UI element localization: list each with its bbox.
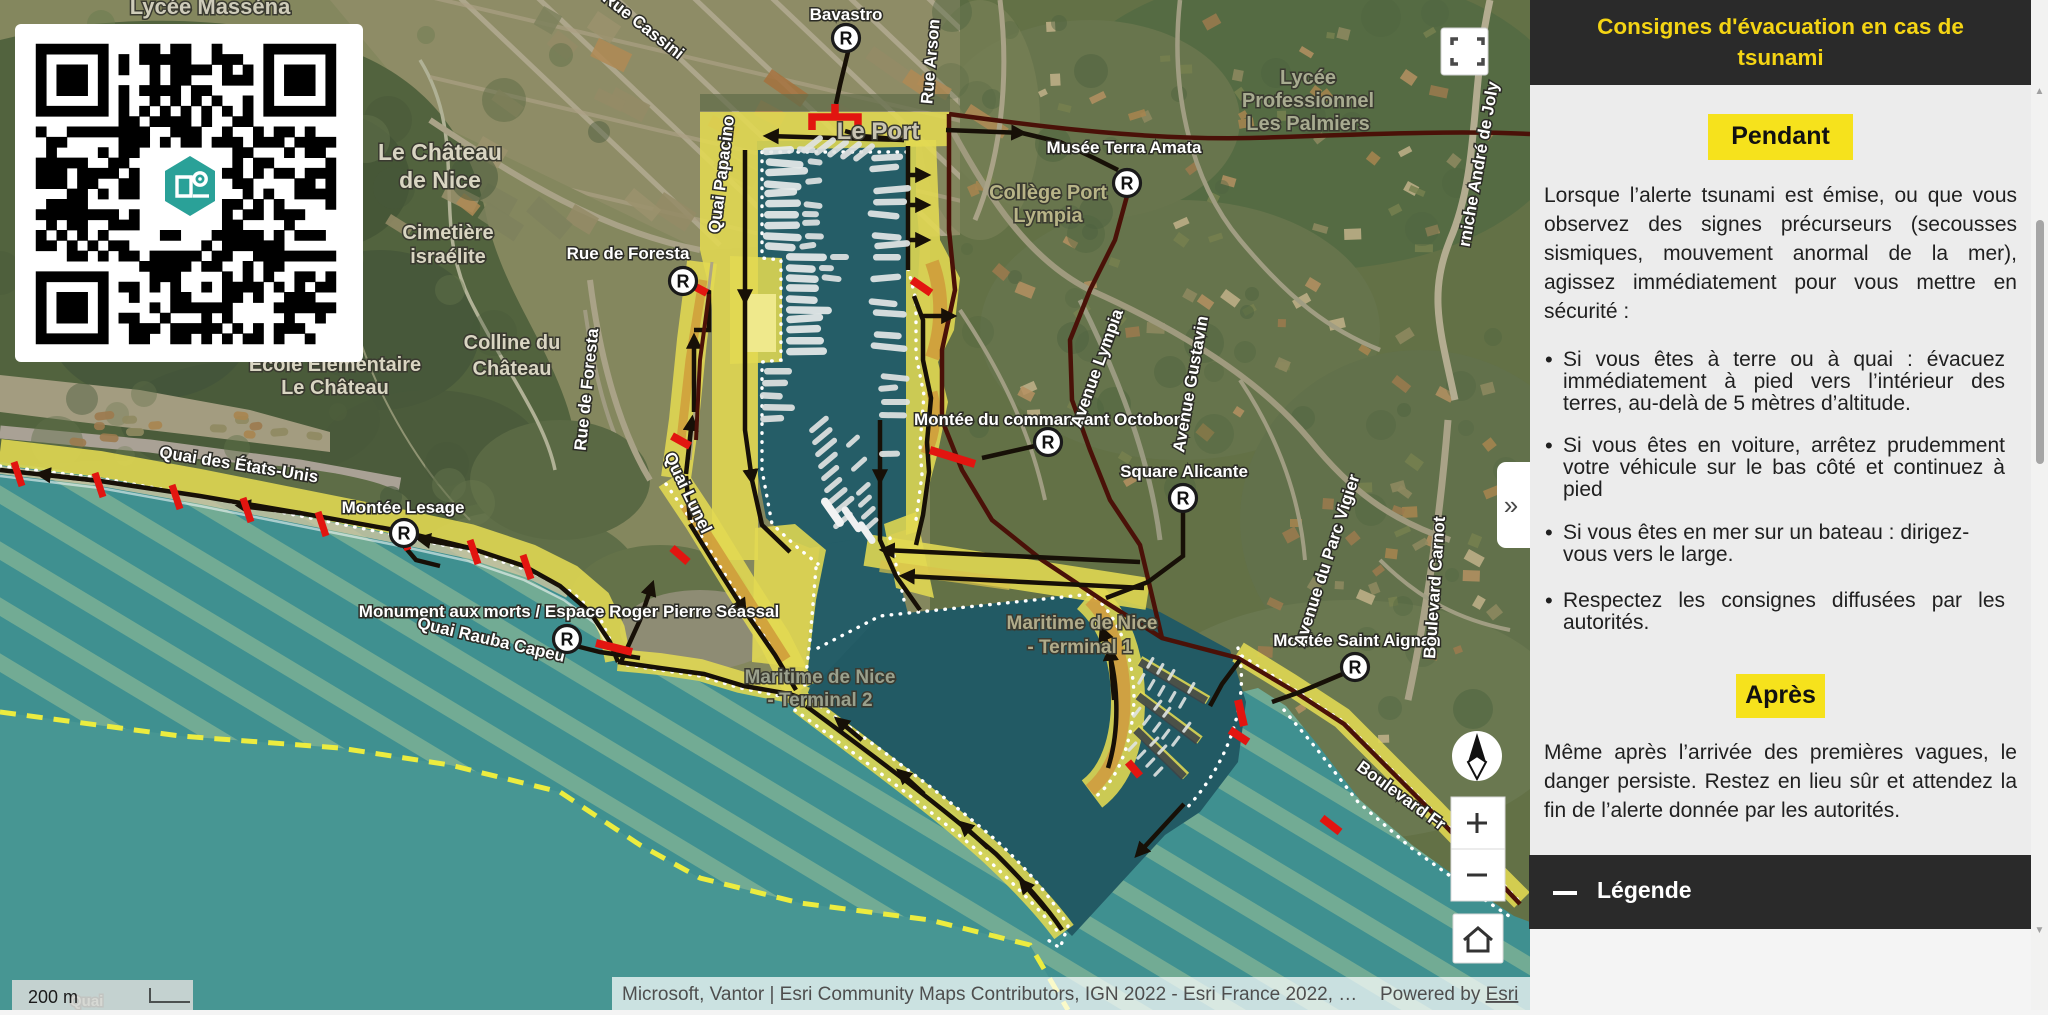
svg-text:R: R	[1042, 433, 1055, 453]
svg-text:Maritime de Nice: Maritime de Nice	[745, 667, 896, 688]
svg-text:Colline du: Colline du	[464, 332, 561, 354]
svg-text:Microsoft, Vantor | Esri Commu: Microsoft, Vantor | Esri Community Maps …	[622, 984, 1357, 1005]
svg-text:de Nice: de Nice	[399, 167, 481, 193]
svg-text:Professionnel: Professionnel	[1242, 90, 1374, 112]
svg-text:R: R	[561, 630, 574, 650]
svg-text:Lycée Masséna: Lycée Masséna	[130, 0, 291, 19]
svg-text:200 m: 200 m	[28, 987, 78, 1007]
svg-text:»: »	[1504, 490, 1518, 520]
svg-text:Le Port: Le Port	[837, 118, 920, 145]
svg-text:- Terminal 1: - Terminal 1	[1027, 637, 1133, 658]
svg-text:israélite: israélite	[410, 246, 486, 268]
svg-text:Musée Terra Amata: Musée Terra Amata	[1047, 138, 1202, 157]
svg-text:Lycée: Lycée	[1280, 67, 1336, 89]
svg-text:Cimetière: Cimetière	[402, 222, 493, 244]
svg-text:Maritime de Nice: Maritime de Nice	[1007, 613, 1158, 634]
svg-text:Bavastro: Bavastro	[810, 5, 883, 24]
svg-text:R: R	[1177, 489, 1190, 509]
svg-text:Montée Lesage: Montée Lesage	[342, 498, 465, 517]
svg-text:R: R	[398, 524, 411, 544]
svg-text:Les Palmiers: Les Palmiers	[1246, 113, 1369, 135]
svg-text:R: R	[1349, 658, 1362, 678]
svg-text:Square Alicante: Square Alicante	[1120, 462, 1248, 481]
svg-text:Le Château: Le Château	[281, 377, 389, 399]
svg-text:Collège Port: Collège Port	[989, 182, 1107, 204]
svg-text:- Terminal 2: - Terminal 2	[767, 690, 872, 711]
svg-text:Lympia: Lympia	[1013, 205, 1083, 227]
svg-text:Le Château: Le Château	[378, 139, 502, 165]
svg-text:Powered by Esri: Powered by Esri	[1380, 984, 1518, 1005]
svg-text:R: R	[840, 29, 853, 49]
svg-text:R: R	[677, 272, 690, 292]
svg-text:Montée du commandant Octobon: Montée du commandant Octobon	[914, 410, 1184, 429]
svg-text:R: R	[1121, 174, 1134, 194]
svg-text:Rue de Foresta: Rue de Foresta	[567, 244, 690, 263]
svg-text:Château: Château	[473, 358, 552, 380]
